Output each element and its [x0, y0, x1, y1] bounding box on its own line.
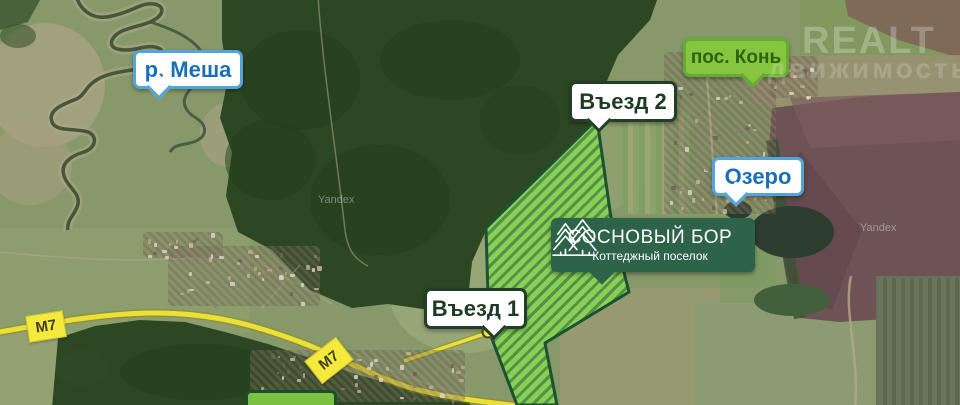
lake-callout[interactable]: Озеро: [712, 157, 804, 196]
entrance1-callout[interactable]: Въезд 1: [424, 288, 527, 329]
yandex-watermark: Yandex: [318, 194, 355, 206]
village-houses: [143, 232, 223, 258]
entrance2-label: Въезд 2: [579, 89, 666, 115]
furrowed-field: [878, 278, 960, 405]
m7-label: М7: [34, 316, 57, 336]
realt-watermark-line2: движимость: [768, 53, 960, 85]
river-callout[interactable]: р. Меша: [133, 50, 243, 89]
map-canvas[interactable]: р. Меша Въезд 2 пос. Конь Озеро Въезд 1 …: [0, 0, 960, 405]
yandex-watermark: Yandex: [860, 222, 897, 234]
brand-badge-sosnoviy-bor[interactable]: СОСНОВЫЙ БОР Коттеджный поселок: [551, 218, 755, 272]
m7-label: М7: [316, 347, 343, 373]
entrance2-callout[interactable]: Въезд 2: [569, 81, 677, 122]
bottom-cutoff-callout[interactable]: [245, 390, 337, 405]
entrance1-label: Въезд 1: [432, 296, 519, 322]
